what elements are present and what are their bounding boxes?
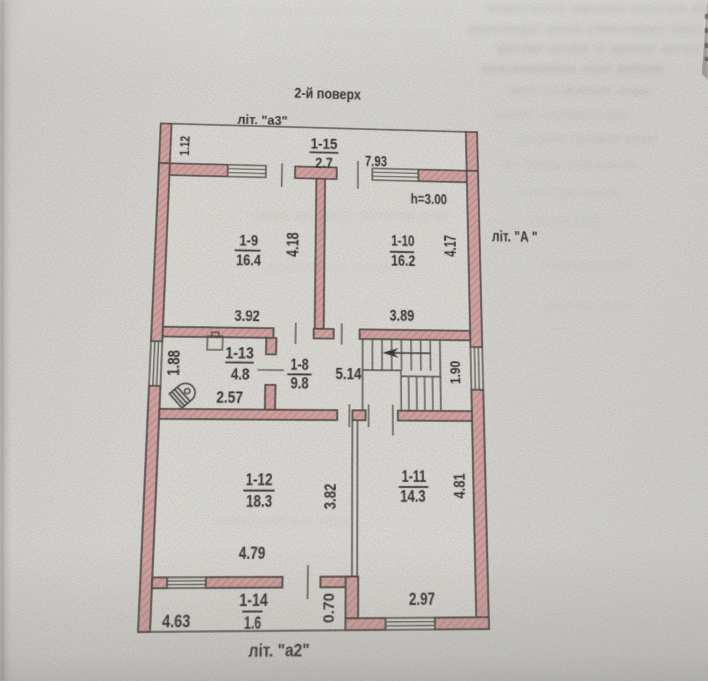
svg-text:4.81: 4.81	[452, 473, 470, 498]
svg-text:9.8: 9.8	[290, 374, 309, 392]
svg-text:1-8: 1-8	[290, 356, 309, 374]
svg-text:1.12: 1.12	[177, 136, 193, 156]
svg-text:літ. "а2": літ. "а2"	[248, 641, 310, 662]
svg-text:2.57: 2.57	[216, 389, 243, 408]
svg-text:1-14: 1-14	[239, 591, 268, 611]
svg-text:1-10: 1-10	[391, 233, 415, 250]
svg-text:3.82: 3.82	[322, 484, 340, 510]
svg-text:18.3: 18.3	[246, 492, 273, 511]
svg-text:7.93: 7.93	[365, 153, 387, 170]
svg-text:16.4: 16.4	[236, 252, 262, 270]
svg-text:1.88: 1.88	[164, 350, 184, 376]
svg-text:літ. "а3": літ. "а3"	[237, 111, 288, 128]
svg-text:4.8: 4.8	[231, 366, 250, 384]
svg-text:1-13: 1-13	[225, 345, 254, 363]
svg-text:2.97: 2.97	[409, 590, 435, 610]
svg-text:h=3.00: h=3.00	[411, 192, 448, 208]
svg-text:1-11: 1-11	[402, 468, 427, 487]
svg-text:1.90: 1.90	[446, 360, 464, 384]
svg-text:0.70: 0.70	[319, 593, 338, 624]
svg-text:5.14: 5.14	[335, 365, 361, 383]
svg-text:4.79: 4.79	[239, 544, 266, 564]
svg-text:2-й поверх: 2-й поверх	[294, 85, 361, 103]
svg-text:літ. "А ": літ. "А "	[492, 228, 538, 246]
svg-text:1-15: 1-15	[310, 136, 337, 153]
svg-text:4.18: 4.18	[283, 232, 303, 257]
svg-text:14.3: 14.3	[400, 488, 426, 507]
svg-text:3.92: 3.92	[234, 307, 260, 325]
svg-text:3.89: 3.89	[390, 307, 415, 325]
svg-text:1-9: 1-9	[239, 232, 259, 250]
svg-text:4.63: 4.63	[162, 612, 191, 632]
svg-text:4.17: 4.17	[441, 235, 460, 257]
svg-text:2.7: 2.7	[315, 155, 333, 172]
svg-text:1.6: 1.6	[244, 614, 262, 634]
svg-text:1-12: 1-12	[245, 470, 273, 489]
